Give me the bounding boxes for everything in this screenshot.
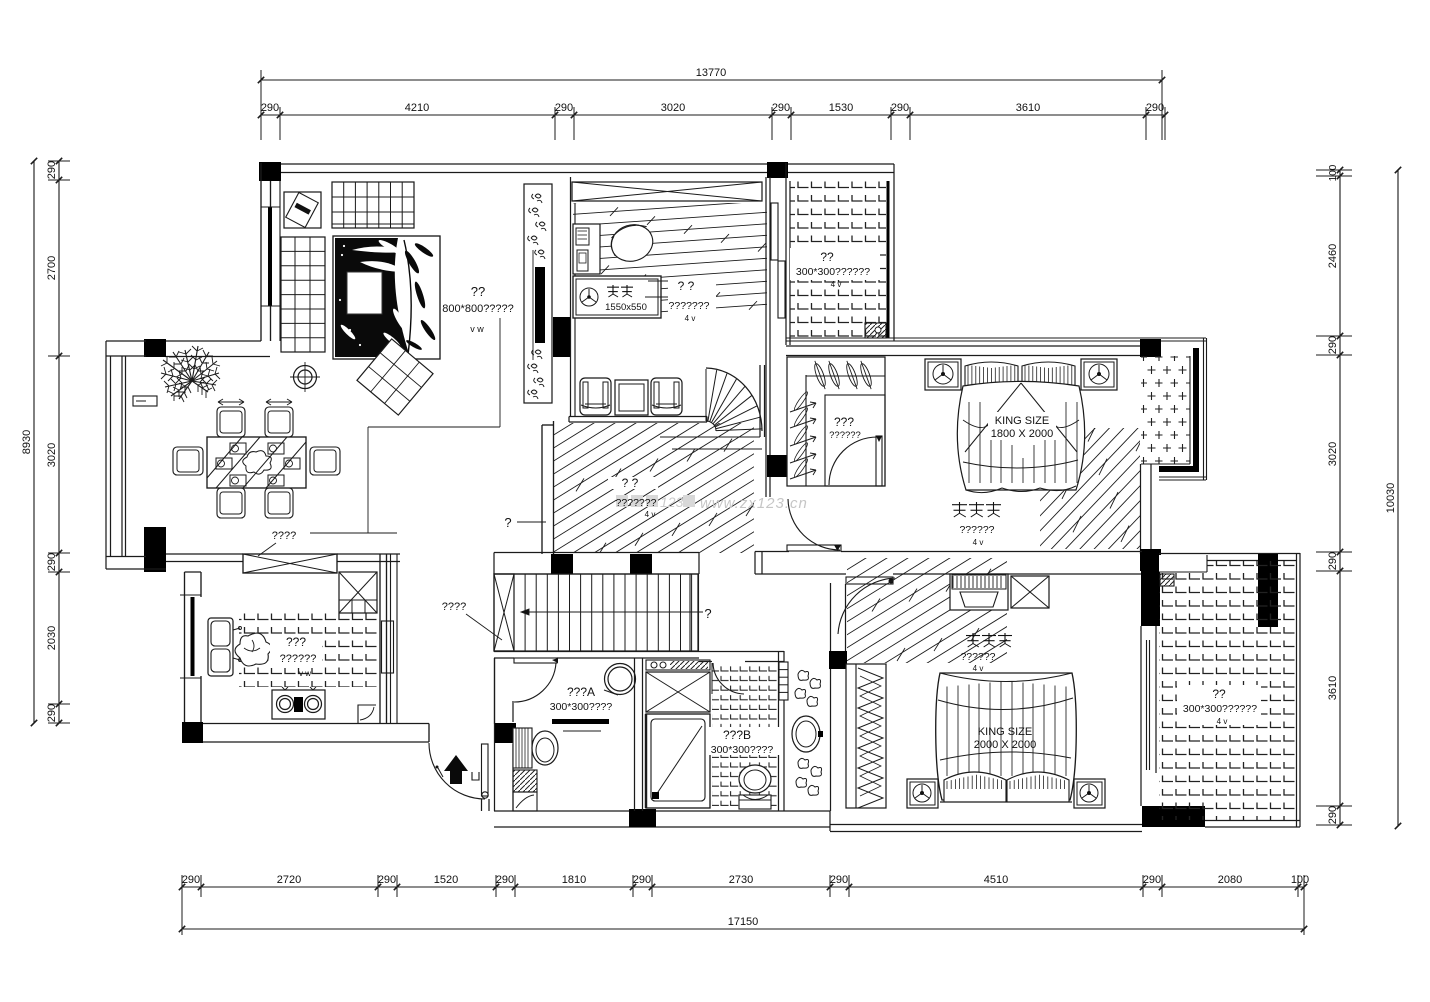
svg-text:??????: ?????? [960,651,995,663]
svg-text:1530: 1530 [829,102,853,114]
svg-text:???B: ???B [723,728,751,742]
svg-text:10030: 10030 [1385,483,1397,514]
svg-text:???A: ???A [567,685,595,699]
svg-text:13770: 13770 [696,67,727,79]
svg-text:2000 X 2000: 2000 X 2000 [974,739,1036,751]
svg-text:290: 290 [830,874,848,886]
svg-text:2080: 2080 [1218,874,1242,886]
svg-text:www.zx123.cn: www.zx123.cn [700,495,808,512]
svg-text:4 v: 4 v [831,280,842,289]
svg-text:290: 290 [496,874,514,886]
svg-text:3020: 3020 [661,102,685,114]
svg-text:1800 X 2000: 1800 X 2000 [991,428,1053,440]
svg-text:??: ?? [471,284,485,299]
svg-text:KING SIZE: KING SIZE [995,415,1049,427]
svg-text:2700: 2700 [46,256,58,280]
svg-text:290: 290 [555,102,573,114]
svg-text:????: ???? [272,530,296,542]
svg-text:300*300????: 300*300???? [550,701,613,713]
svg-text:300*300????: 300*300???? [711,744,774,756]
svg-text:??: ?? [820,250,834,264]
svg-text:800*800?????: 800*800????? [442,303,514,315]
svg-text:290: 290 [1146,102,1164,114]
svg-text:2030: 2030 [46,626,58,650]
svg-text:2720: 2720 [277,874,301,886]
svg-text:4210: 4210 [405,102,429,114]
svg-text:290: 290 [46,161,58,179]
svg-text:1810: 1810 [562,874,586,886]
svg-text:290: 290 [891,102,909,114]
svg-text:300*300??????: 300*300?????? [796,266,870,278]
svg-text:290: 290 [182,874,200,886]
svg-text:??: ?? [1212,687,1226,701]
svg-text:v w: v w [299,669,311,678]
svg-text:290: 290 [633,874,651,886]
svg-text:290: 290 [46,704,58,722]
svg-text:??????: ?????? [280,653,317,665]
svg-text:4 v: 4 v [973,538,984,547]
svg-text:3610: 3610 [1016,102,1040,114]
svg-text:2730: 2730 [729,874,753,886]
svg-text:? ?: ? ? [622,476,639,490]
svg-text:290: 290 [378,874,396,886]
svg-text:3020: 3020 [1327,442,1339,466]
svg-text:1550x550: 1550x550 [605,302,647,313]
svg-text:3020: 3020 [46,443,58,467]
svg-text:?: ? [704,606,711,621]
svg-text:290: 290 [1327,806,1339,824]
svg-text:4 v: 4 v [1217,717,1228,726]
svg-text:300*300??????: 300*300?????? [1183,703,1257,715]
svg-text:v w: v w [470,324,484,334]
svg-text:290: 290 [261,102,279,114]
svg-text:4 v: 4 v [685,314,696,323]
svg-text:?: ? [504,515,511,530]
svg-text:290: 290 [1143,874,1161,886]
svg-text:????: ???? [442,601,466,613]
svg-text:290: 290 [1327,336,1339,354]
svg-text:123: 123 [660,494,684,510]
svg-text:???: ??? [834,415,854,429]
svg-text:3610: 3610 [1327,676,1339,700]
svg-text:100: 100 [1291,874,1309,886]
svg-text:8930: 8930 [21,430,33,454]
svg-text:??????: ?????? [959,524,994,536]
svg-text:KING SIZE: KING SIZE [978,726,1032,738]
svg-text:290: 290 [772,102,790,114]
svg-text:???: ??? [286,635,306,649]
svg-text:???????: ??????? [616,497,657,509]
svg-text:4510: 4510 [984,874,1008,886]
svg-text:??????: ?????? [829,430,861,441]
svg-text:1520: 1520 [434,874,458,886]
svg-text:100: 100 [1328,164,1339,181]
svg-text:???????: ??????? [669,300,710,312]
svg-text:4 v: 4 v [973,664,984,673]
svg-text:290: 290 [1327,552,1339,570]
svg-text:2460: 2460 [1327,244,1339,268]
svg-text:290: 290 [46,553,58,571]
svg-text:17150: 17150 [728,916,759,928]
svg-text:4 v: 4 v [645,510,656,519]
svg-text:? ?: ? ? [678,279,695,293]
